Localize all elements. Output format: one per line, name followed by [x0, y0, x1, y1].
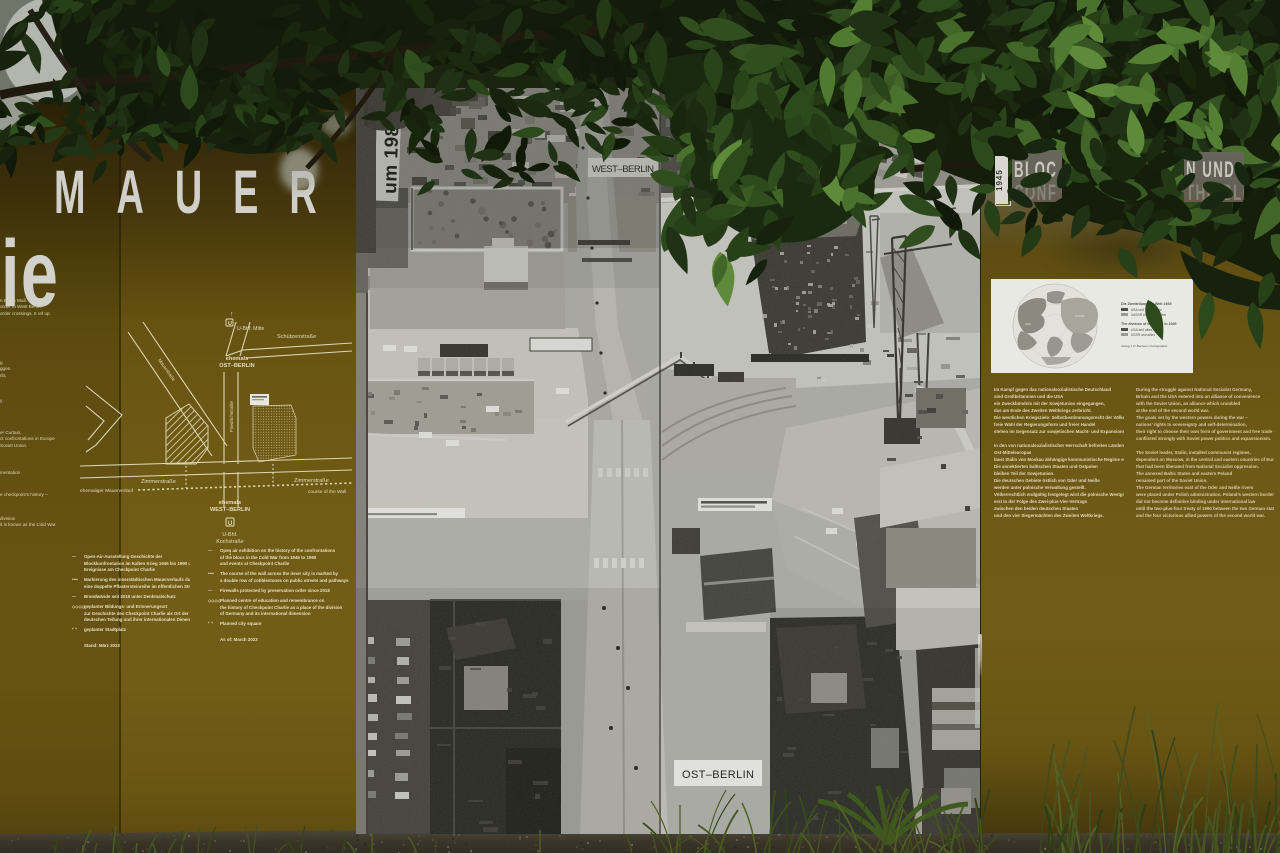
- svg-text:U-Bhf.: U-Bhf.: [222, 532, 237, 538]
- svg-text:U: U: [228, 521, 232, 527]
- svg-text:Kochstraße: Kochstraße: [216, 539, 244, 545]
- svg-text:Zimmerstraße: Zimmerstraße: [141, 479, 176, 485]
- svg-text:course of the Wall: course of the Wall: [308, 489, 346, 495]
- svg-text:WEST–BERLIN: WEST–BERLIN: [210, 507, 250, 513]
- svg-text:ehemals: ehemals: [219, 500, 241, 506]
- svg-text:Zimmerstraße: Zimmerstraße: [294, 478, 329, 484]
- svg-text:ehemaliger Mauerverlauf: ehemaliger Mauerverlauf: [80, 488, 134, 494]
